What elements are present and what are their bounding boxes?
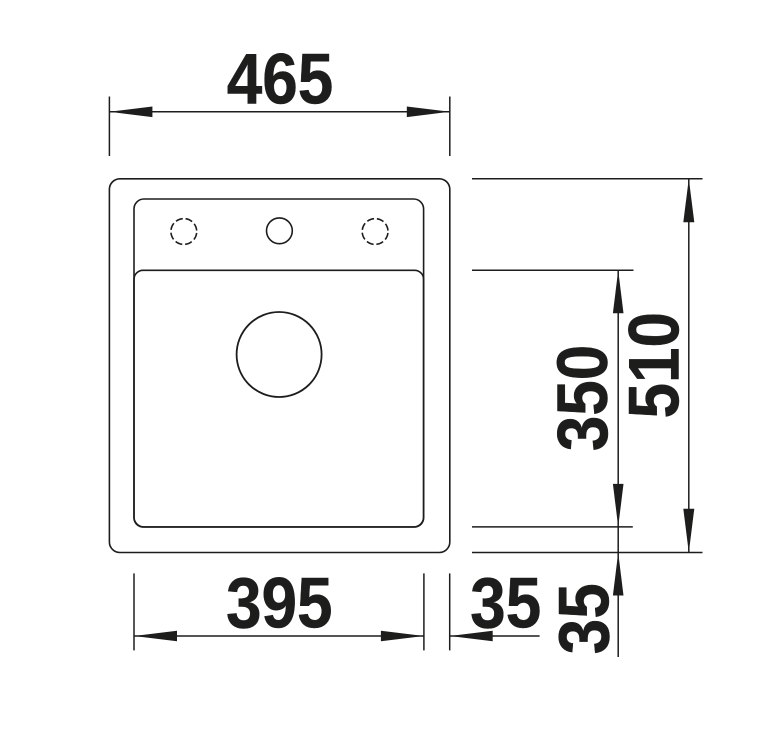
svg-text:510: 510 <box>616 312 695 419</box>
svg-text:465: 465 <box>227 40 334 119</box>
svg-text:35: 35 <box>545 583 624 654</box>
svg-text:350: 350 <box>544 345 623 452</box>
svg-text:395: 395 <box>226 565 333 644</box>
svg-text:35: 35 <box>470 565 541 644</box>
